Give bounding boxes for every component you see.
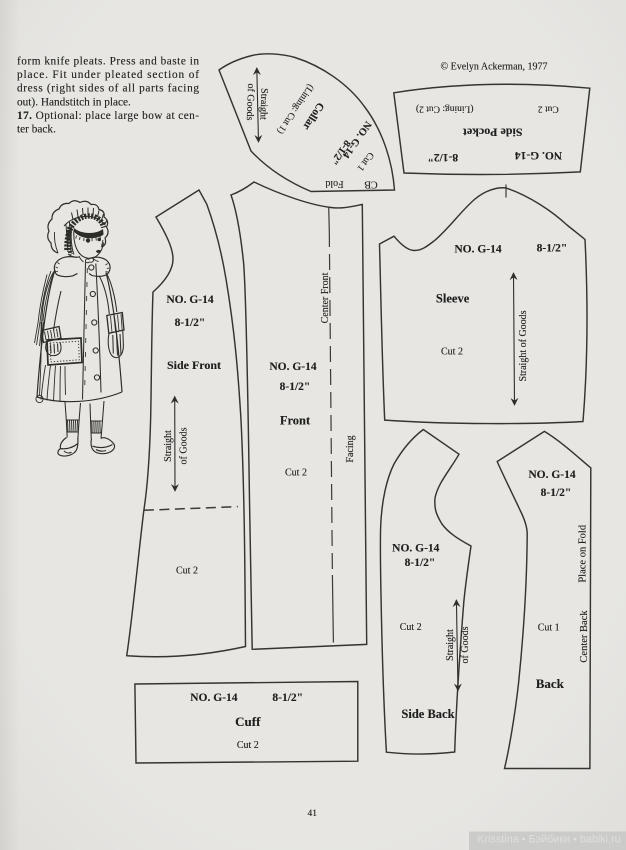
svg-text:8-1/2": 8-1/2" — [272, 692, 303, 704]
svg-text:out). Handstitch in place.: out). Handstitch in place. — [17, 96, 131, 108]
svg-text:8-1/2": 8-1/2" — [541, 487, 572, 499]
svg-text:of Goods: of Goods — [460, 626, 471, 663]
svg-text:Cut 2: Cut 2 — [441, 347, 463, 358]
svg-text:Place on Fold: Place on Fold — [577, 524, 588, 582]
svg-text:Straight: Straight — [445, 629, 456, 661]
svg-text:NO. G-14: NO. G-14 — [515, 149, 563, 161]
svg-text:Center Back: Center Back — [579, 610, 590, 663]
svg-text:Fold: Fold — [325, 178, 343, 189]
svg-text:17. Optional: place large bow: 17. Optional: place large bow at cen- — [17, 110, 199, 122]
svg-text:Side Pocket: Side Pocket — [463, 126, 523, 140]
svg-text:Facing: Facing — [345, 435, 356, 462]
svg-text:Center Front: Center Front — [320, 272, 331, 323]
svg-text:form knife pleats. Press and b: form knife pleats. Press and baste in — [17, 56, 199, 68]
svg-text:Straight of Goods: Straight of Goods — [518, 310, 529, 381]
svg-text:8-1/2": 8-1/2" — [405, 557, 436, 569]
svg-text:41: 41 — [308, 809, 318, 819]
svg-text:8-1/2": 8-1/2" — [427, 151, 458, 163]
svg-text:NO. G-14: NO. G-14 — [454, 244, 502, 256]
svg-text:Straight: Straight — [257, 88, 269, 120]
svg-text:ter back.: ter back. — [17, 124, 56, 136]
svg-text:of Goods: of Goods — [179, 427, 190, 464]
svg-text:place. Fit under pleated secti: place. Fit under pleated section of — [17, 69, 199, 81]
svg-text:8-1/2": 8-1/2" — [175, 317, 206, 329]
svg-text:8-1/2": 8-1/2" — [280, 381, 311, 393]
svg-text:Cut 2: Cut 2 — [237, 740, 259, 751]
svg-text:Side Front: Side Front — [167, 358, 221, 372]
svg-text:© Evelyn Ackerman, 1977: © Evelyn Ackerman, 1977 — [440, 62, 547, 73]
svg-text:NO. G-14: NO. G-14 — [190, 692, 238, 704]
svg-text:Sleeve: Sleeve — [436, 292, 470, 306]
svg-text:CB: CB — [364, 179, 378, 190]
svg-text:Side Back: Side Back — [401, 707, 454, 721]
svg-text:Front: Front — [280, 414, 311, 428]
svg-text:8-1/2": 8-1/2" — [537, 243, 568, 255]
svg-text:Cut 2: Cut 2 — [285, 468, 307, 479]
svg-text:Krisstina • Бэйбики • babiki.r: Krisstina • Бэйбики • babiki.ru — [477, 833, 620, 845]
svg-text:Cut 1: Cut 1 — [538, 622, 560, 633]
svg-text:Straight: Straight — [163, 430, 174, 462]
svg-text:Cut 2: Cut 2 — [538, 104, 559, 114]
svg-text:of Goods: of Goods — [244, 83, 256, 120]
svg-text:NO. G-14: NO. G-14 — [269, 361, 317, 373]
svg-text:Cuff: Cuff — [235, 714, 261, 729]
svg-text:NO. G-14: NO. G-14 — [392, 542, 440, 554]
svg-text:(Lining: Cut 2): (Lining: Cut 2) — [416, 104, 474, 115]
svg-text:NO. G-14: NO. G-14 — [528, 469, 576, 481]
svg-text:Cut 2: Cut 2 — [400, 622, 422, 633]
svg-text:Cut 2: Cut 2 — [176, 566, 198, 577]
svg-text:Back: Back — [536, 676, 565, 691]
svg-text:NO. G-14: NO. G-14 — [166, 294, 214, 306]
svg-text:dress (right sides of all part: dress (right sides of all parts facing — [17, 83, 199, 95]
